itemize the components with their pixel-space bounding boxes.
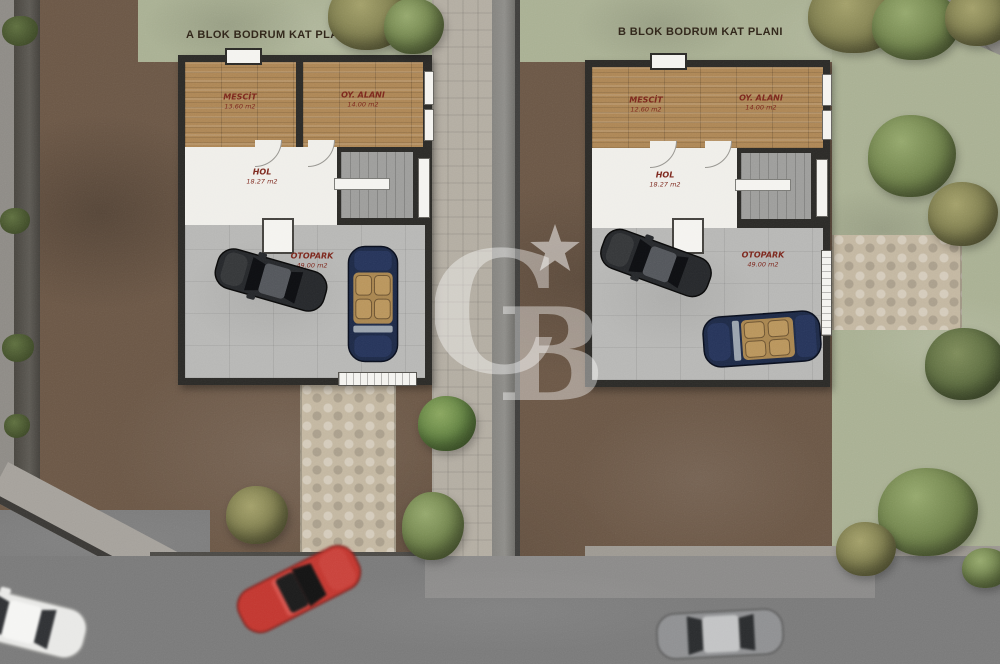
block-a-mescit-label: MESCİT 13.60 m2 (223, 93, 257, 112)
tree (226, 486, 288, 544)
room-name: MESCİT (629, 96, 663, 106)
block-a-wall-notch (225, 48, 262, 65)
tree (928, 182, 998, 246)
room-area: 49.00 m2 (742, 261, 785, 269)
site-plan-rendering: A BLOK BODRUM KAT PLANI B BLOK BODRUM KA… (0, 0, 1000, 664)
room-name: OTOPARK (742, 251, 785, 261)
block-a-oyalani-label: OY. ALANI 14.00 m2 (341, 91, 385, 110)
stone-walkway-center (432, 0, 492, 575)
block-a-title: A BLOK BODRUM KAT PLANI (186, 29, 350, 41)
room-area: 18.27 m2 (649, 181, 680, 189)
room-area: 14.00 m2 (739, 104, 783, 112)
room-name: OY. ALANI (341, 91, 385, 101)
tree (836, 522, 896, 576)
car-convertible-navy (346, 245, 400, 363)
room-area: 13.60 m2 (223, 103, 257, 111)
tree (418, 396, 476, 451)
tree (925, 328, 1000, 400)
car-convertible-navy (699, 308, 824, 370)
room-area: 12.60 m2 (629, 106, 663, 114)
block-a-entry-door (418, 158, 430, 218)
road-apron (425, 556, 875, 598)
window (822, 110, 832, 140)
block-b-hol-label: HOL 18.27 m2 (649, 171, 680, 190)
block-a-building: MESCİT 13.60 m2 OY. ALANI 14.00 m2 HOL 1… (178, 55, 432, 385)
car-gray (644, 602, 797, 664)
block-a-hol-label: HOL 18.27 m2 (246, 168, 277, 187)
block-b-building: MESCİT 12.60 m2 OY. ALANI 14.00 m2 HOL 1… (585, 60, 830, 387)
room-name: HOL (246, 168, 277, 178)
star-icon (530, 224, 579, 271)
block-b-wall-notch (650, 53, 687, 70)
window (424, 109, 434, 141)
block-b-mescit-label: MESCİT 12.60 m2 (629, 96, 663, 115)
block-b-garage-door (821, 250, 832, 336)
block-a-stair-landing (334, 178, 390, 190)
room-name: HOL (649, 171, 680, 181)
room-name: OY. ALANI (739, 94, 783, 104)
block-b-stair-landing (735, 179, 791, 191)
block-b-oyalani-label: OY. ALANI 14.00 m2 (739, 94, 783, 113)
room-area: 18.27 m2 (246, 178, 277, 186)
block-a-garage-door (338, 372, 417, 386)
tree (402, 492, 464, 560)
road-vertical (492, 0, 520, 575)
block-b-otopark-label: OTOPARK 49.00 m2 (742, 251, 785, 270)
block-b-entry-door (816, 159, 828, 217)
window (424, 71, 434, 105)
tree (962, 548, 1000, 588)
block-b-title: B BLOK BODRUM KAT PLANI (618, 26, 783, 38)
room-name: MESCİT (223, 93, 257, 103)
tree (868, 115, 956, 197)
window (822, 74, 832, 106)
room-name: OTOPARK (291, 252, 334, 262)
room-area: 14.00 m2 (341, 101, 385, 109)
driveway-block-b (832, 235, 962, 330)
block-a-hall-door (262, 218, 294, 254)
